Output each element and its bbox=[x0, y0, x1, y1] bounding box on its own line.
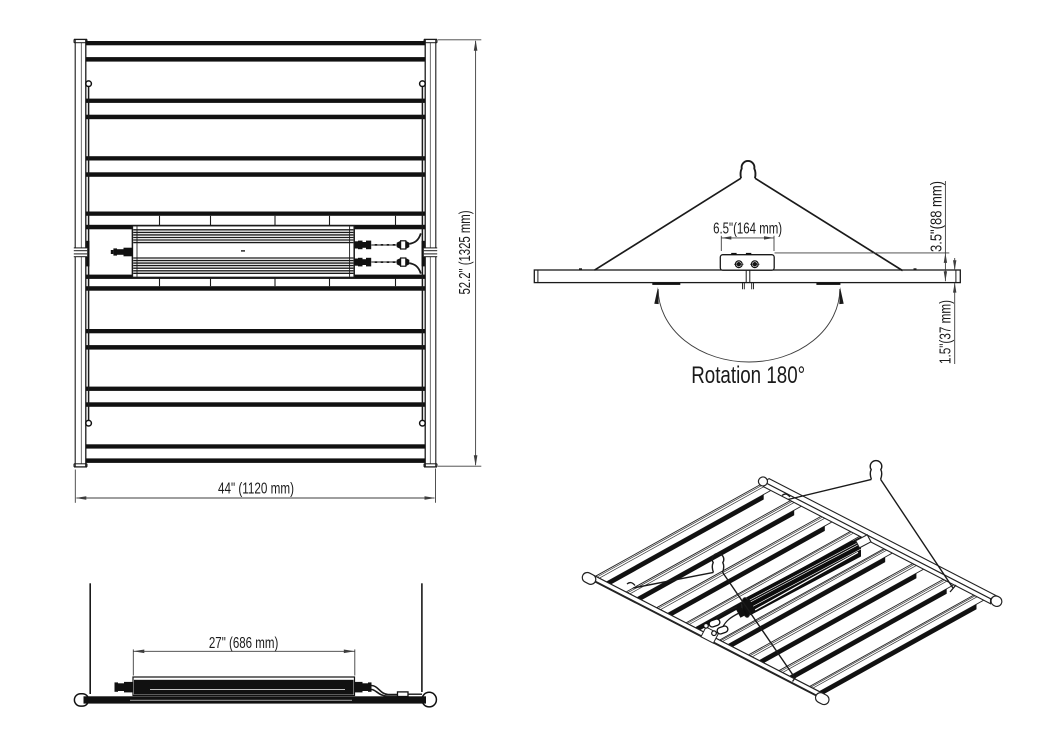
svg-text:3.5"(88 mm): 3.5"(88 mm) bbox=[929, 181, 946, 252]
svg-text:6.5"(164 mm): 6.5"(164 mm) bbox=[713, 221, 782, 238]
svg-text:44" (1120 mm): 44" (1120 mm) bbox=[218, 481, 294, 498]
svg-text:Rotation 180°: Rotation 180° bbox=[691, 362, 805, 389]
svg-text:52.2" (1325 mm): 52.2" (1325 mm) bbox=[457, 211, 474, 295]
svg-text:27" (686 mm): 27" (686 mm) bbox=[209, 635, 278, 652]
svg-text:1.5"(37 mm): 1.5"(37 mm) bbox=[938, 300, 955, 364]
